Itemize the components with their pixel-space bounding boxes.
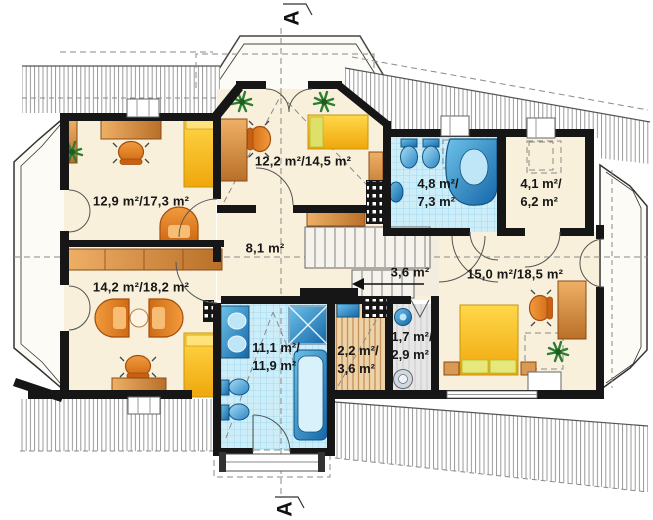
floor-plan-drawing [0, 0, 653, 520]
desk-icon [219, 119, 247, 181]
chimney-icon [203, 300, 214, 322]
armchair-icon [95, 299, 129, 337]
washbasin-counter-icon [221, 306, 249, 358]
bed-icon [184, 333, 216, 397]
sink-icon [395, 309, 412, 326]
section-marker-a-bottom: A [274, 501, 298, 516]
toilet-icon [221, 404, 249, 420]
room-label-bedroom-top-left: 12,9 m²/17,3 m² [93, 194, 189, 209]
room-label-bathroom-top: 4,8 m²/ 7,3 m² [417, 175, 458, 211]
room-label-bathroom-bottom: 11,1 m²/ 11,9 m² [252, 339, 300, 375]
sideboard-icon [307, 212, 365, 226]
roof-window-icon [128, 397, 160, 414]
window-seat-icon [528, 372, 561, 391]
bed-icon [308, 115, 368, 149]
room-label-bedroom-top-center: 12,2 m²/14,5 m² [255, 154, 351, 169]
window-icon [447, 391, 537, 398]
shower-drain-icon [394, 370, 413, 389]
sauna-heater-icon [337, 304, 359, 317]
desk-icon [558, 281, 586, 339]
terrace [219, 452, 325, 472]
toilet-icon [221, 379, 249, 395]
right-bay-balcony [600, 165, 647, 390]
toilet-icon [401, 139, 418, 168]
roof-window-icon [127, 99, 159, 117]
chimney-icon [362, 298, 388, 318]
nightstand-icon [444, 362, 459, 375]
coffee-table-icon [130, 309, 148, 327]
roof-window-icon [527, 118, 555, 138]
floor-plan: 12,9 m²/17,3 m² 14,2 m²/18,2 m² 12,2 m²/… [0, 0, 653, 520]
room-label-bedroom-right: 15,0 m²/18,5 m² [467, 267, 563, 282]
roof-window-icon [441, 116, 469, 136]
section-marker-a-top: A [281, 10, 305, 25]
room-label-wardrobe: 4,1 m²/ 6,2 m² [520, 175, 561, 211]
bed-icon [184, 115, 216, 187]
room-label-sauna: 2,2 m²/ 3,6 m² [337, 342, 378, 378]
wardrobe-icon [66, 249, 222, 270]
chimney-icon [366, 180, 383, 224]
room-label-landing: 3,6 m² [391, 265, 430, 280]
room-label-bedroom-bottom-left: 14,2 m²/18,2 m² [93, 280, 189, 295]
room-label-shower-room: 1,7 m²/ 2,9 m² [391, 328, 432, 364]
bidet-icon [423, 139, 440, 168]
armchair-icon [149, 299, 183, 337]
room-label-hall: 8,1 m² [246, 241, 285, 256]
sink-icon [389, 182, 403, 202]
double-bed-icon [460, 305, 518, 375]
